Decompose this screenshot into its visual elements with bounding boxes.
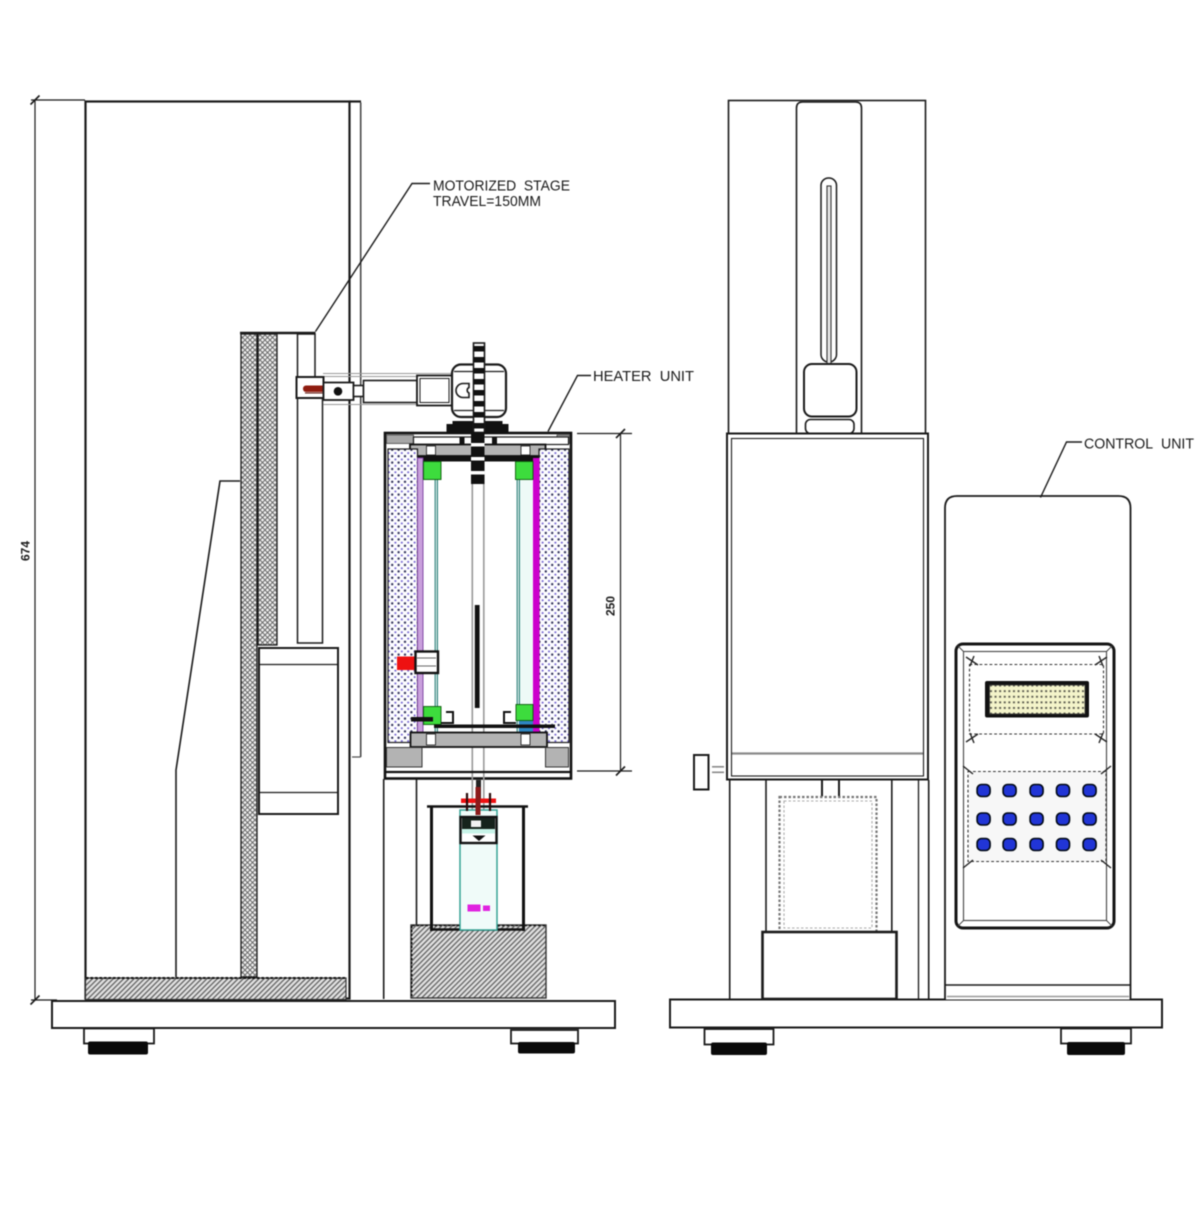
svg-text:CONTROL UNIT: CONTROL UNIT (1084, 437, 1194, 453)
svg-text:MOTORIZED STAGE: MOTORIZED STAGE (433, 179, 570, 195)
svg-text:250: 250 (604, 596, 618, 616)
svg-text:TRAVEL=150MM: TRAVEL=150MM (433, 194, 541, 210)
svg-text:674: 674 (19, 541, 33, 561)
svg-text:HEATER UNIT: HEATER UNIT (593, 369, 694, 385)
